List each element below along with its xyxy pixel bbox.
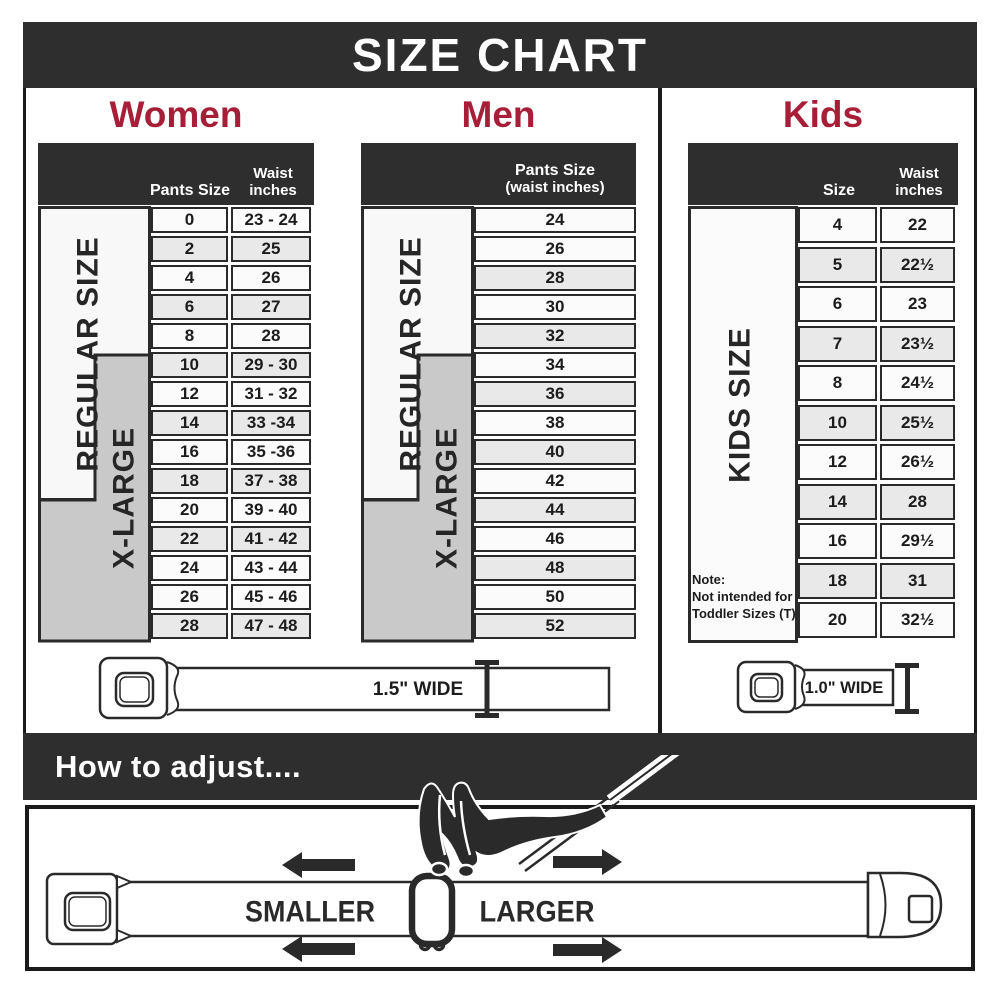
table-row: 46 — [474, 526, 636, 552]
kids-belt-width-label: 1.0" WIDE — [805, 679, 883, 697]
table-cell-waist: 29 - 30 — [231, 352, 311, 378]
table-cell-size: 40 — [474, 439, 636, 465]
table-cell-waist: 24½ — [880, 365, 955, 401]
table-cell-waist: 26 — [231, 265, 311, 291]
table-cell-waist: 25½ — [880, 405, 955, 441]
table-cell-size: 50 — [474, 584, 636, 610]
table-cell-waist: 32½ — [880, 602, 955, 638]
table-row: 34 — [474, 352, 636, 378]
table-cell-size: 26 — [474, 236, 636, 262]
table-row: 52 — [474, 613, 636, 639]
men-size-table: Pants Size (waist inches) REGULAR SIZE X… — [361, 143, 636, 645]
women-col-pants-size: Pants Size — [148, 182, 232, 200]
table-cell-size: 30 — [474, 294, 636, 320]
table-cell-size: 26 — [151, 584, 228, 610]
table-cell-waist: 27 — [231, 294, 311, 320]
table-cell-size: 8 — [151, 323, 228, 349]
men-section-title: Men — [361, 94, 636, 136]
table-cell-size: 24 — [474, 207, 636, 233]
table-cell-waist: 26½ — [880, 444, 955, 480]
table-row: 50 — [474, 584, 636, 610]
table-row: 225 — [151, 236, 311, 262]
women-table-header: Pants Size Waist inches — [38, 143, 314, 205]
table-cell-size: 44 — [474, 497, 636, 523]
table-cell-size: 7 — [798, 326, 877, 362]
table-cell-size: 28 — [151, 613, 228, 639]
kids-section-title: Kids — [688, 94, 958, 136]
table-cell-size: 16 — [798, 523, 877, 559]
table-cell-waist: 28 — [231, 323, 311, 349]
men-rows: 242628303234363840424446485052 — [474, 207, 636, 642]
frame-right-border — [974, 88, 977, 733]
table-row: 32 — [474, 323, 636, 349]
title-bar: SIZE CHART — [23, 22, 977, 88]
table-cell-waist: 47 - 48 — [231, 613, 311, 639]
kids-table-header: Size Waist inches — [688, 143, 958, 205]
table-row: 2241 - 42 — [151, 526, 311, 552]
size-chart-infographic: SIZE CHART Women Men Kids Pants Size Wai… — [0, 0, 1000, 1000]
table-cell-size: 34 — [474, 352, 636, 378]
table-cell-waist: 31 — [880, 563, 955, 599]
kids-rows: 422522½623723½824½1025½1226½14281629½183… — [798, 207, 955, 642]
kids-belt-illustration: 1.0" WIDE — [720, 650, 990, 735]
adult-belt-illustration: 1.5" WIDE — [40, 650, 640, 735]
table-cell-waist: 39 - 40 — [231, 497, 311, 523]
table-cell-size: 42 — [474, 468, 636, 494]
table-cell-size: 46 — [474, 526, 636, 552]
table-cell-waist: 22½ — [880, 247, 955, 283]
table-row: 24 — [474, 207, 636, 233]
table-row: 1231 - 32 — [151, 381, 311, 407]
table-cell-size: 6 — [151, 294, 228, 320]
table-row: 2443 - 44 — [151, 555, 311, 581]
table-cell-waist: 23 - 24 — [231, 207, 311, 233]
men-col-pants-size: Pants Size (waist inches) — [474, 162, 636, 197]
table-row: 723½ — [798, 326, 955, 363]
table-cell-size: 2 — [151, 236, 228, 262]
table-row: 1226½ — [798, 444, 955, 481]
table-cell-waist: 29½ — [880, 523, 955, 559]
table-cell-size: 6 — [798, 286, 877, 322]
table-row: 28 — [474, 265, 636, 291]
table-cell-waist: 45 - 46 — [231, 584, 311, 610]
frame-left-border — [23, 88, 26, 733]
table-cell-waist: 33 -34 — [231, 410, 311, 436]
men-regular-size-label: REGULAR SIZE — [395, 236, 428, 471]
women-rows: 023 - 242254266278281029 - 301231 - 3214… — [151, 207, 311, 642]
table-cell-size: 24 — [151, 555, 228, 581]
table-row: 522½ — [798, 247, 955, 284]
table-cell-waist: 28 — [880, 484, 955, 520]
men-xlarge-label: X-LARGE — [431, 427, 464, 569]
table-cell-size: 48 — [474, 555, 636, 581]
table-cell-size: 8 — [798, 365, 877, 401]
table-cell-waist: 23 — [880, 286, 955, 322]
table-row: 623 — [798, 286, 955, 323]
belt-slider — [412, 876, 452, 950]
table-row: 42 — [474, 468, 636, 494]
table-cell-waist: 22 — [880, 207, 955, 243]
table-row: 30 — [474, 294, 636, 320]
table-cell-size: 20 — [151, 497, 228, 523]
table-cell-size: 14 — [151, 410, 228, 436]
table-cell-size: 20 — [798, 602, 877, 638]
kids-panel-divider — [658, 88, 662, 733]
women-size-table: Pants Size Waist inches REGULAR SIZE X-L… — [38, 143, 314, 645]
table-cell-waist: 35 -36 — [231, 439, 311, 465]
table-cell-size: 4 — [151, 265, 228, 291]
table-cell-size: 14 — [798, 484, 877, 520]
table-row: 2645 - 46 — [151, 584, 311, 610]
table-cell-waist: 41 - 42 — [231, 526, 311, 552]
table-row: 44 — [474, 497, 636, 523]
table-cell-size: 52 — [474, 613, 636, 639]
table-row: 828 — [151, 323, 311, 349]
table-row: 40 — [474, 439, 636, 465]
table-row: 1635 -36 — [151, 439, 311, 465]
women-section-title: Women — [38, 94, 314, 136]
table-cell-size: 12 — [798, 444, 877, 480]
table-cell-size: 32 — [474, 323, 636, 349]
kids-size-table: Size Waist inches KIDS SIZE Note: Not in… — [688, 143, 958, 645]
table-row: 36 — [474, 381, 636, 407]
kids-toddler-note: Note: Not intended for Toddler Sizes (T) — [692, 571, 798, 622]
kids-col-size: Size — [798, 182, 880, 200]
table-row: 824½ — [798, 365, 955, 402]
table-row: 26 — [474, 236, 636, 262]
table-cell-waist: 31 - 32 — [231, 381, 311, 407]
kids-width-measure-icon — [895, 663, 919, 714]
table-cell-size: 10 — [151, 352, 228, 378]
table-row: 2847 - 48 — [151, 613, 311, 639]
table-cell-size: 18 — [798, 563, 877, 599]
table-cell-size: 16 — [151, 439, 228, 465]
table-row: 1025½ — [798, 405, 955, 442]
table-cell-size: 28 — [474, 265, 636, 291]
table-row: 38 — [474, 410, 636, 436]
table-row: 1831 — [798, 563, 955, 600]
table-row: 1428 — [798, 484, 955, 521]
table-row: 627 — [151, 294, 311, 320]
adult-belt-width-label: 1.5" WIDE — [373, 679, 463, 700]
women-col-waist: Waist inches — [232, 166, 314, 200]
table-cell-size: 36 — [474, 381, 636, 407]
table-row: 48 — [474, 555, 636, 581]
larger-label: LARGER — [480, 896, 595, 929]
women-xlarge-label: X-LARGE — [108, 427, 141, 569]
table-cell-size: 38 — [474, 410, 636, 436]
page-title: SIZE CHART — [352, 28, 648, 82]
table-row: 422 — [798, 207, 955, 244]
table-cell-waist: 43 - 44 — [231, 555, 311, 581]
table-cell-size: 22 — [151, 526, 228, 552]
table-row: 2032½ — [798, 602, 955, 639]
table-row: 426 — [151, 265, 311, 291]
table-cell-waist: 37 - 38 — [231, 468, 311, 494]
table-cell-waist: 23½ — [880, 326, 955, 362]
smaller-label: SMALLER — [245, 896, 375, 929]
table-cell-waist: 25 — [231, 236, 311, 262]
table-row: 2039 - 40 — [151, 497, 311, 523]
adjust-illustration: SMALLER LARGER — [25, 755, 975, 972]
kids-col-waist: Waist inches — [880, 166, 958, 200]
women-regular-size-label: REGULAR SIZE — [72, 236, 105, 471]
kids-size-label: KIDS SIZE — [724, 327, 757, 483]
table-cell-size: 5 — [798, 247, 877, 283]
table-cell-size: 10 — [798, 405, 877, 441]
table-row: 1433 -34 — [151, 410, 311, 436]
table-row: 1837 - 38 — [151, 468, 311, 494]
table-cell-size: 4 — [798, 207, 877, 243]
table-cell-size: 18 — [151, 468, 228, 494]
men-table-header: Pants Size (waist inches) — [361, 143, 636, 205]
table-row: 1629½ — [798, 523, 955, 560]
table-cell-size: 0 — [151, 207, 228, 233]
table-cell-size: 12 — [151, 381, 228, 407]
table-row: 1029 - 30 — [151, 352, 311, 378]
adjust-belt-tip — [868, 873, 941, 937]
table-row: 023 - 24 — [151, 207, 311, 233]
